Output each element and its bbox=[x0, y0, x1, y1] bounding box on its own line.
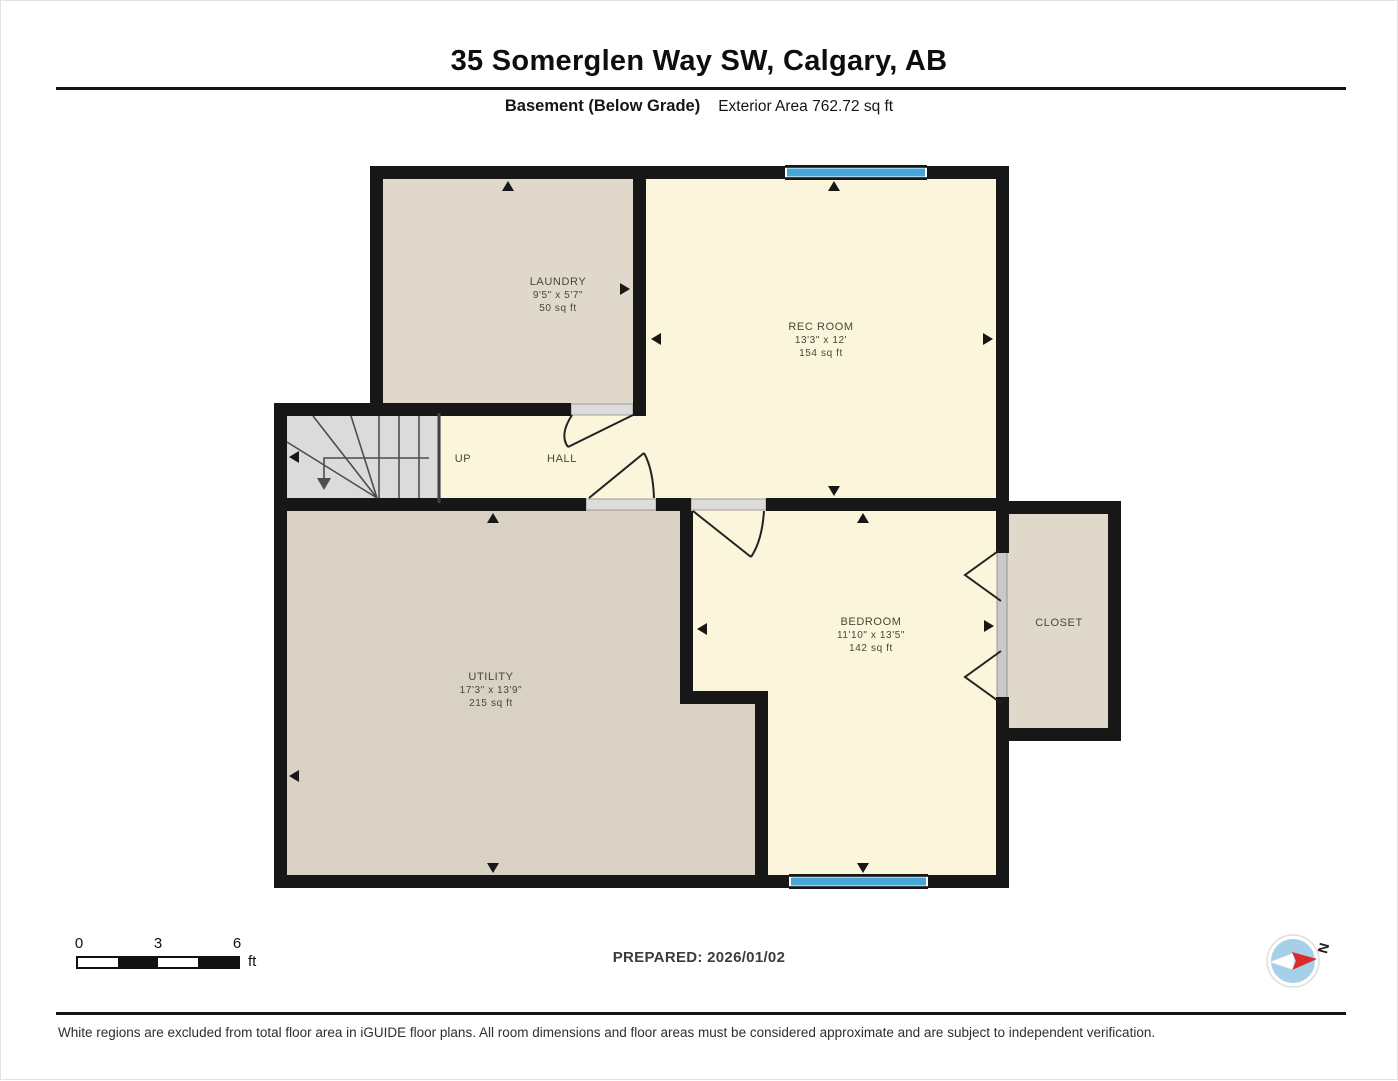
rec-room-window bbox=[785, 165, 927, 180]
hall-name: HALL bbox=[547, 453, 577, 465]
prepared-date-label: PREPARED: 2026/01/02 bbox=[1, 949, 1397, 966]
bedroom-door-opening bbox=[691, 499, 766, 510]
laundry-area: 50 sq ft bbox=[539, 303, 577, 314]
bedroom-window bbox=[789, 874, 928, 889]
laundry-dims: 9'5" x 5'7" bbox=[533, 290, 583, 301]
laundry-door-opening bbox=[571, 404, 633, 415]
bedroom-area: 142 sq ft bbox=[849, 643, 893, 654]
compass: N bbox=[1261, 929, 1337, 991]
hall-floor bbox=[439, 409, 999, 504]
rec-room-dims: 13'3" x 12' bbox=[795, 335, 847, 346]
bedroom-name: BEDROOM bbox=[840, 616, 901, 628]
utility-name: UTILITY bbox=[468, 671, 513, 683]
stairs-up-label: UP bbox=[455, 453, 471, 465]
laundry-name: LAUNDRY bbox=[530, 276, 587, 288]
utility-area: 215 sq ft bbox=[469, 698, 513, 709]
compass-icon: N bbox=[1261, 929, 1337, 991]
hall-door-opening bbox=[586, 499, 656, 510]
disclaimer-text: White regions are excluded from total fl… bbox=[58, 1025, 1357, 1040]
bedroom-dims: 11'10" x 13'5" bbox=[837, 630, 905, 641]
footer-divider bbox=[56, 1012, 1346, 1015]
floor-plan: LAUNDRY 9'5" x 5'7" 50 sq ft REC ROOM 13… bbox=[1, 1, 1398, 1081]
rec-room-name: REC ROOM bbox=[788, 321, 853, 333]
closet-bifold-opening bbox=[997, 549, 1007, 701]
laundry-floor bbox=[371, 167, 641, 410]
rec-room-area: 154 sq ft bbox=[799, 348, 843, 359]
closet-name: CLOSET bbox=[1035, 617, 1083, 629]
utility-dims: 17'3" x 13'9" bbox=[460, 685, 523, 696]
room-fills bbox=[281, 167, 1115, 881]
